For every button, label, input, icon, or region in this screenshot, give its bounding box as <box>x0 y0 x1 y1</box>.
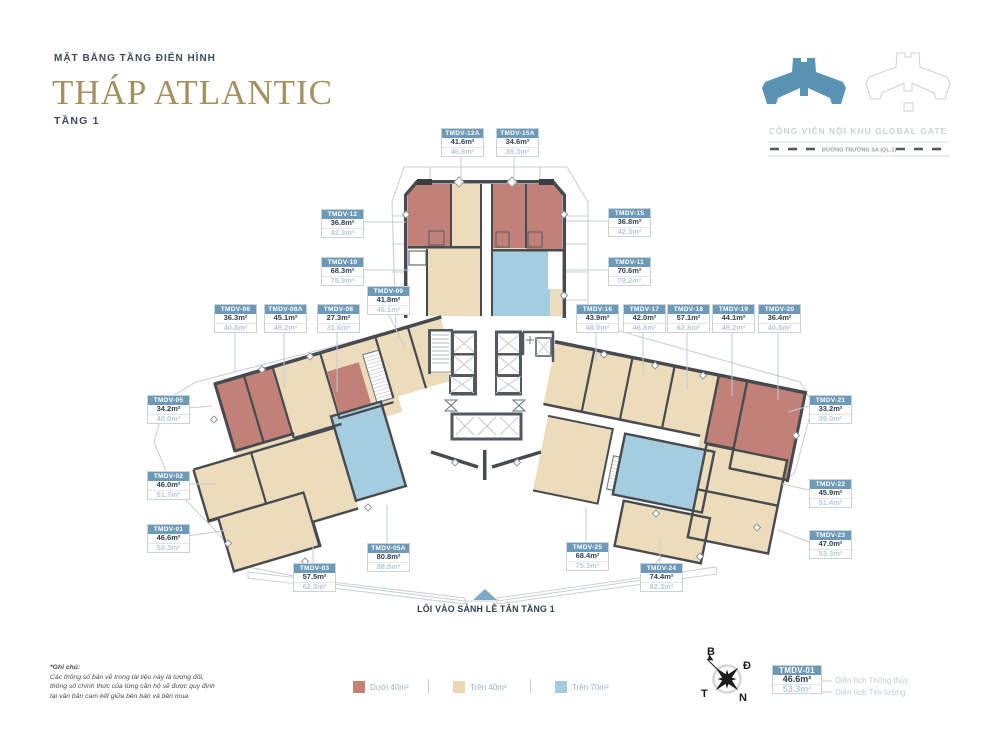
svg-text:CÔNG VIÊN NỘI KHU GLOBAL GATE: CÔNG VIÊN NỘI KHU GLOBAL GATE <box>769 125 947 136</box>
svg-text:N: N <box>739 692 747 704</box>
svg-text:ĐƯỜNG TRƯỜNG SA (QL.1): ĐƯỜNG TRƯỜNG SA (QL.1) <box>822 146 896 154</box>
svg-text:Đ: Đ <box>743 660 751 672</box>
svg-text:T: T <box>701 688 708 700</box>
svg-text:B: B <box>707 646 715 658</box>
